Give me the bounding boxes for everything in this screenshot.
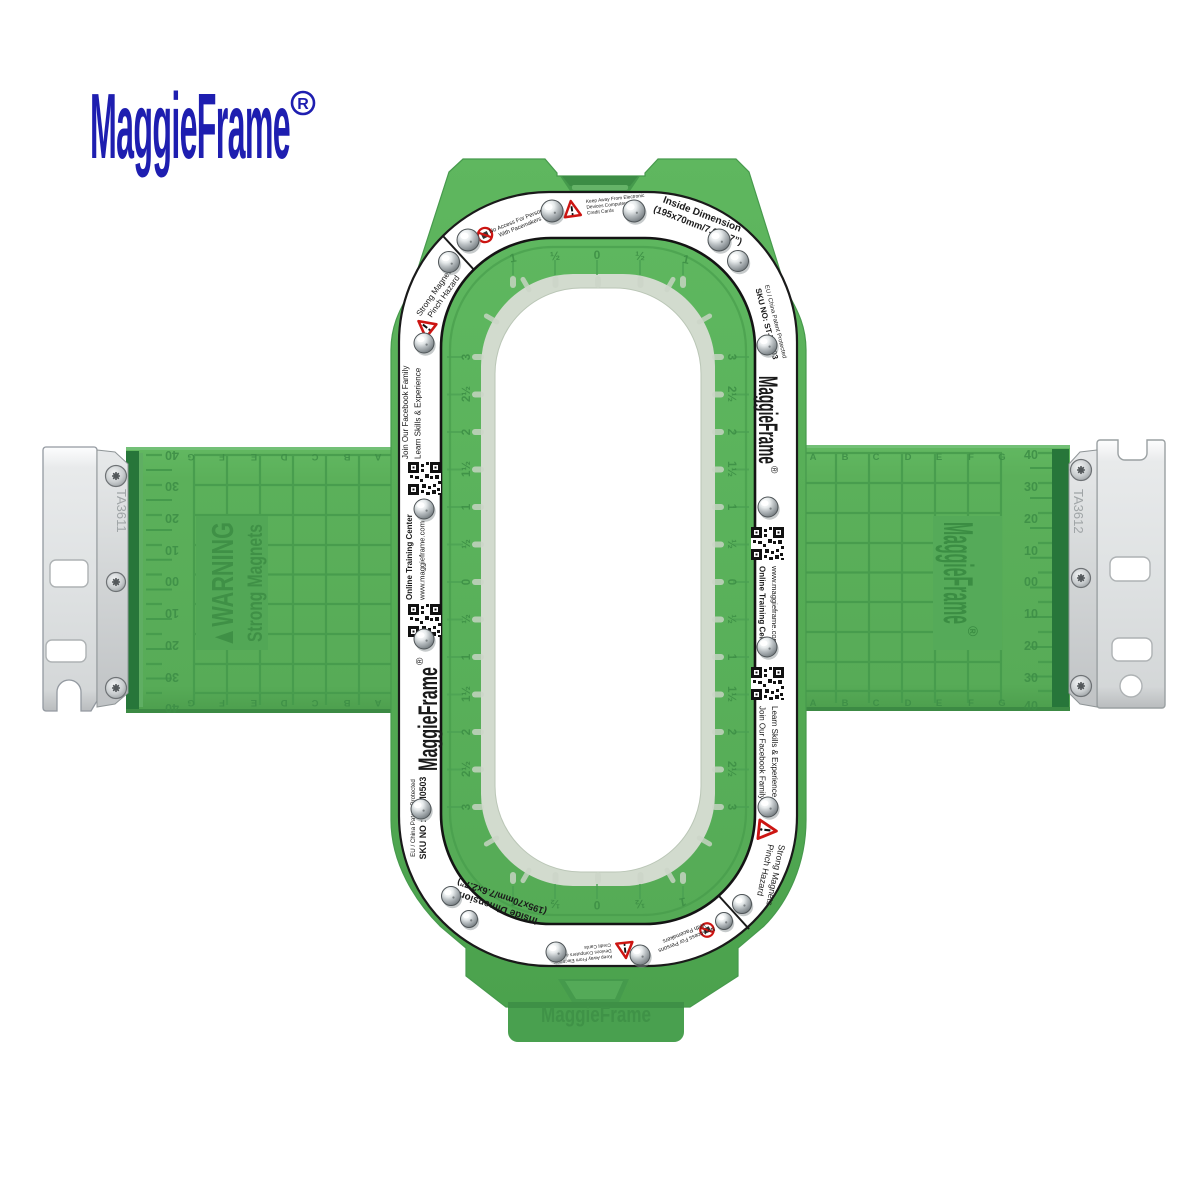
svg-text:TA3611: TA3611 [114, 489, 129, 533]
svg-text:3: 3 [461, 354, 473, 360]
svg-text:1½: 1½ [725, 686, 737, 702]
svg-text:40: 40 [1024, 699, 1038, 713]
svg-text:B: B [842, 452, 849, 463]
svg-text:10: 10 [165, 606, 179, 620]
svg-text:®: ® [768, 466, 779, 474]
svg-text:G: G [187, 697, 194, 708]
svg-text:1½: 1½ [725, 461, 737, 477]
svg-text:½: ½ [461, 614, 473, 624]
svg-text:D: D [905, 698, 912, 709]
svg-text:C: C [873, 698, 880, 709]
svg-text:30: 30 [165, 670, 179, 684]
svg-text:20: 20 [1024, 639, 1038, 653]
svg-text:½: ½ [725, 539, 737, 549]
svg-text:D: D [280, 697, 287, 708]
svg-text:E: E [936, 452, 942, 463]
svg-text:1½: 1½ [461, 461, 473, 477]
svg-text:2: 2 [725, 429, 737, 435]
svg-text:20: 20 [165, 638, 179, 652]
svg-text:®: ® [965, 626, 981, 637]
svg-text:E: E [251, 697, 257, 708]
svg-text:0: 0 [725, 579, 737, 585]
svg-text:½: ½ [550, 249, 561, 264]
svg-text:C: C [311, 697, 318, 708]
svg-text:30: 30 [1024, 671, 1038, 685]
svg-text:C: C [311, 451, 318, 462]
svg-text:30: 30 [165, 479, 179, 493]
svg-text:2½: 2½ [725, 386, 737, 402]
svg-text:20: 20 [165, 511, 179, 525]
svg-text:www.maggieframe.com: www.maggieframe.com [418, 521, 427, 601]
svg-text:0: 0 [593, 898, 600, 912]
svg-text:Join Our Facebook Family: Join Our Facebook Family [758, 706, 767, 799]
svg-text:10: 10 [1024, 607, 1038, 621]
svg-text:A: A [810, 452, 817, 463]
svg-text:3: 3 [725, 804, 737, 810]
svg-text:B: B [842, 698, 849, 709]
svg-text:D: D [905, 452, 912, 463]
svg-text:30: 30 [1024, 480, 1038, 494]
svg-text:F: F [219, 697, 225, 708]
svg-text:R: R [297, 96, 309, 113]
svg-text:G: G [187, 451, 194, 462]
svg-text:®: ® [415, 657, 426, 665]
svg-text:MaggieFrame: MaggieFrame [935, 522, 982, 624]
svg-text:½: ½ [725, 614, 737, 624]
svg-text:A: A [374, 697, 381, 708]
svg-text:A: A [810, 698, 817, 709]
svg-text:40: 40 [1024, 448, 1038, 462]
svg-text:1: 1 [461, 503, 473, 510]
svg-text:Online Training Center: Online Training Center [405, 514, 414, 600]
svg-text:TA3612: TA3612 [1071, 489, 1086, 534]
svg-text:D: D [280, 451, 287, 462]
svg-text:10: 10 [1024, 544, 1038, 558]
svg-text:F: F [968, 452, 974, 463]
svg-text:20: 20 [1024, 512, 1038, 526]
svg-text:www.maggieframe.com: www.maggieframe.com [770, 565, 779, 645]
svg-text:Join Our Facebook Family: Join Our Facebook Family [401, 366, 410, 459]
svg-text:MaggieFrame: MaggieFrame [541, 1002, 651, 1027]
svg-text:A: A [374, 451, 381, 462]
svg-text:G: G [998, 698, 1005, 709]
svg-text:40: 40 [165, 701, 179, 715]
svg-text:1: 1 [461, 653, 473, 660]
svg-text:2½: 2½ [461, 761, 473, 777]
svg-text:2½: 2½ [461, 386, 473, 402]
svg-text:1: 1 [725, 654, 737, 661]
svg-text:MaggieFrame: MaggieFrame [753, 376, 783, 464]
svg-text:B: B [343, 697, 350, 708]
svg-text:½: ½ [461, 539, 473, 549]
svg-text:F: F [219, 451, 225, 462]
svg-text:10: 10 [165, 543, 179, 557]
svg-text:2: 2 [461, 729, 473, 735]
svg-text:00: 00 [165, 574, 179, 588]
svg-text:0: 0 [461, 579, 473, 585]
svg-text:3: 3 [461, 804, 473, 810]
svg-text:E: E [936, 698, 942, 709]
svg-text:40: 40 [165, 448, 179, 462]
svg-text:Strong Magnets: Strong Magnets [244, 524, 267, 642]
svg-text:0: 0 [594, 248, 601, 262]
svg-text:MaggieFrame: MaggieFrame [90, 74, 290, 178]
svg-text:½: ½ [635, 249, 646, 264]
svg-text:F: F [968, 698, 974, 709]
svg-text:C: C [873, 452, 880, 463]
svg-text:▲WARNING: ▲WARNING [205, 522, 240, 648]
svg-text:Learn Skills & Experience: Learn Skills & Experience [770, 706, 779, 798]
svg-text:½: ½ [550, 897, 561, 912]
svg-text:G: G [998, 452, 1005, 463]
svg-text:MaggieFrame: MaggieFrame [413, 667, 443, 771]
svg-text:3: 3 [725, 354, 737, 360]
svg-text:2: 2 [725, 729, 737, 735]
svg-text:½: ½ [634, 897, 645, 912]
svg-text:B: B [343, 451, 350, 462]
svg-text:00: 00 [1024, 575, 1038, 589]
svg-text:1½: 1½ [461, 686, 473, 702]
svg-text:2: 2 [461, 429, 473, 435]
svg-text:E: E [251, 451, 257, 462]
svg-text:1: 1 [725, 504, 737, 511]
svg-text:2½: 2½ [725, 761, 737, 777]
svg-text:Learn Skills & Experience: Learn Skills & Experience [414, 367, 423, 459]
